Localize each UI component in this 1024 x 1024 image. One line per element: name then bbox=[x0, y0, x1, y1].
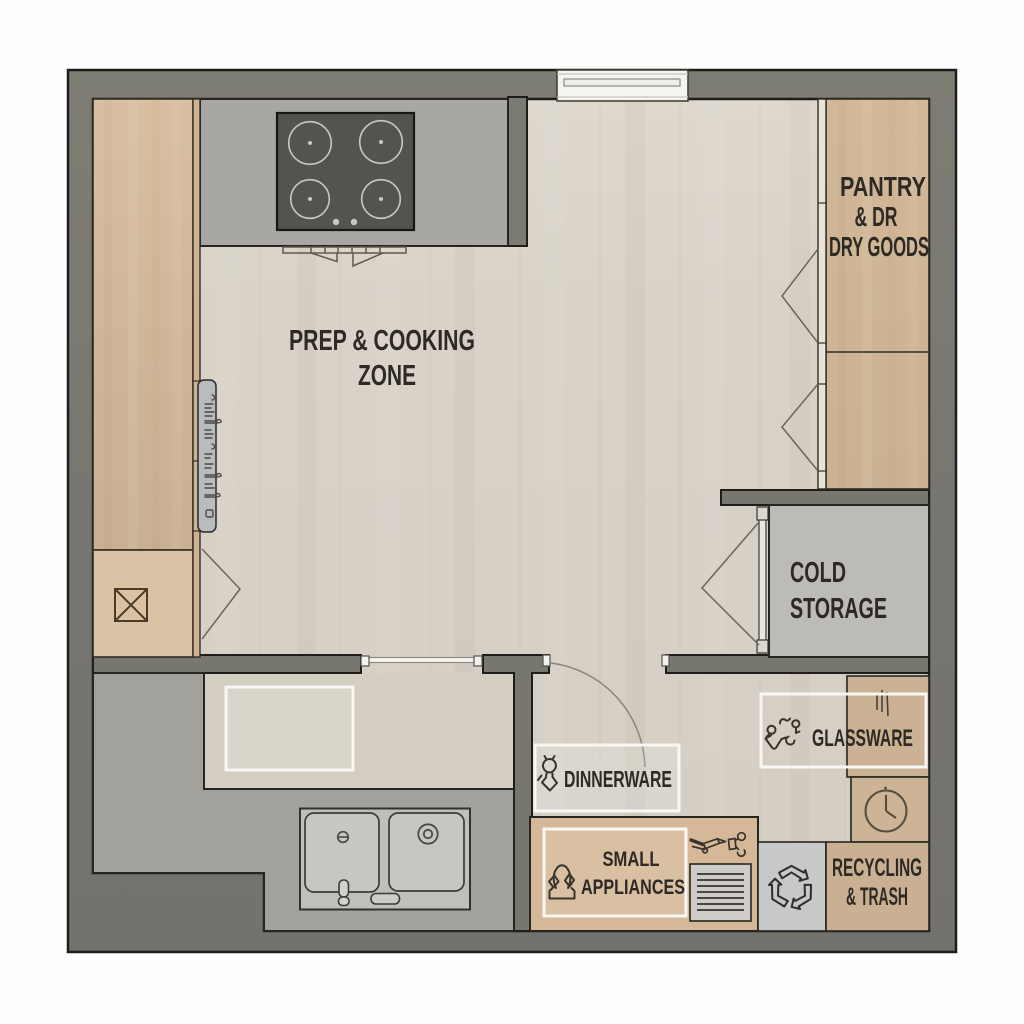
svg-text:PANTRY: PANTRY bbox=[840, 171, 926, 202]
svg-text:STORAGE: STORAGE bbox=[790, 593, 887, 625]
svg-text:SMALL: SMALL bbox=[603, 847, 660, 871]
svg-text:PREP & COOKING: PREP & COOKING bbox=[289, 325, 475, 357]
svg-text:DRY GOODS: DRY GOODS bbox=[829, 231, 929, 262]
svg-text:DINNERWARE: DINNERWARE bbox=[564, 766, 672, 792]
svg-text:APPLIANCES: APPLIANCES bbox=[581, 875, 685, 899]
svg-text:& TRASH: & TRASH bbox=[846, 883, 908, 911]
svg-text:GLASSWARE: GLASSWARE bbox=[812, 725, 913, 752]
svg-text:ZONE: ZONE bbox=[358, 360, 416, 392]
svg-text:RECYCLING: RECYCLING bbox=[832, 854, 922, 882]
svg-text:& DR: & DR bbox=[855, 201, 898, 232]
svg-text:COLD: COLD bbox=[790, 557, 846, 589]
